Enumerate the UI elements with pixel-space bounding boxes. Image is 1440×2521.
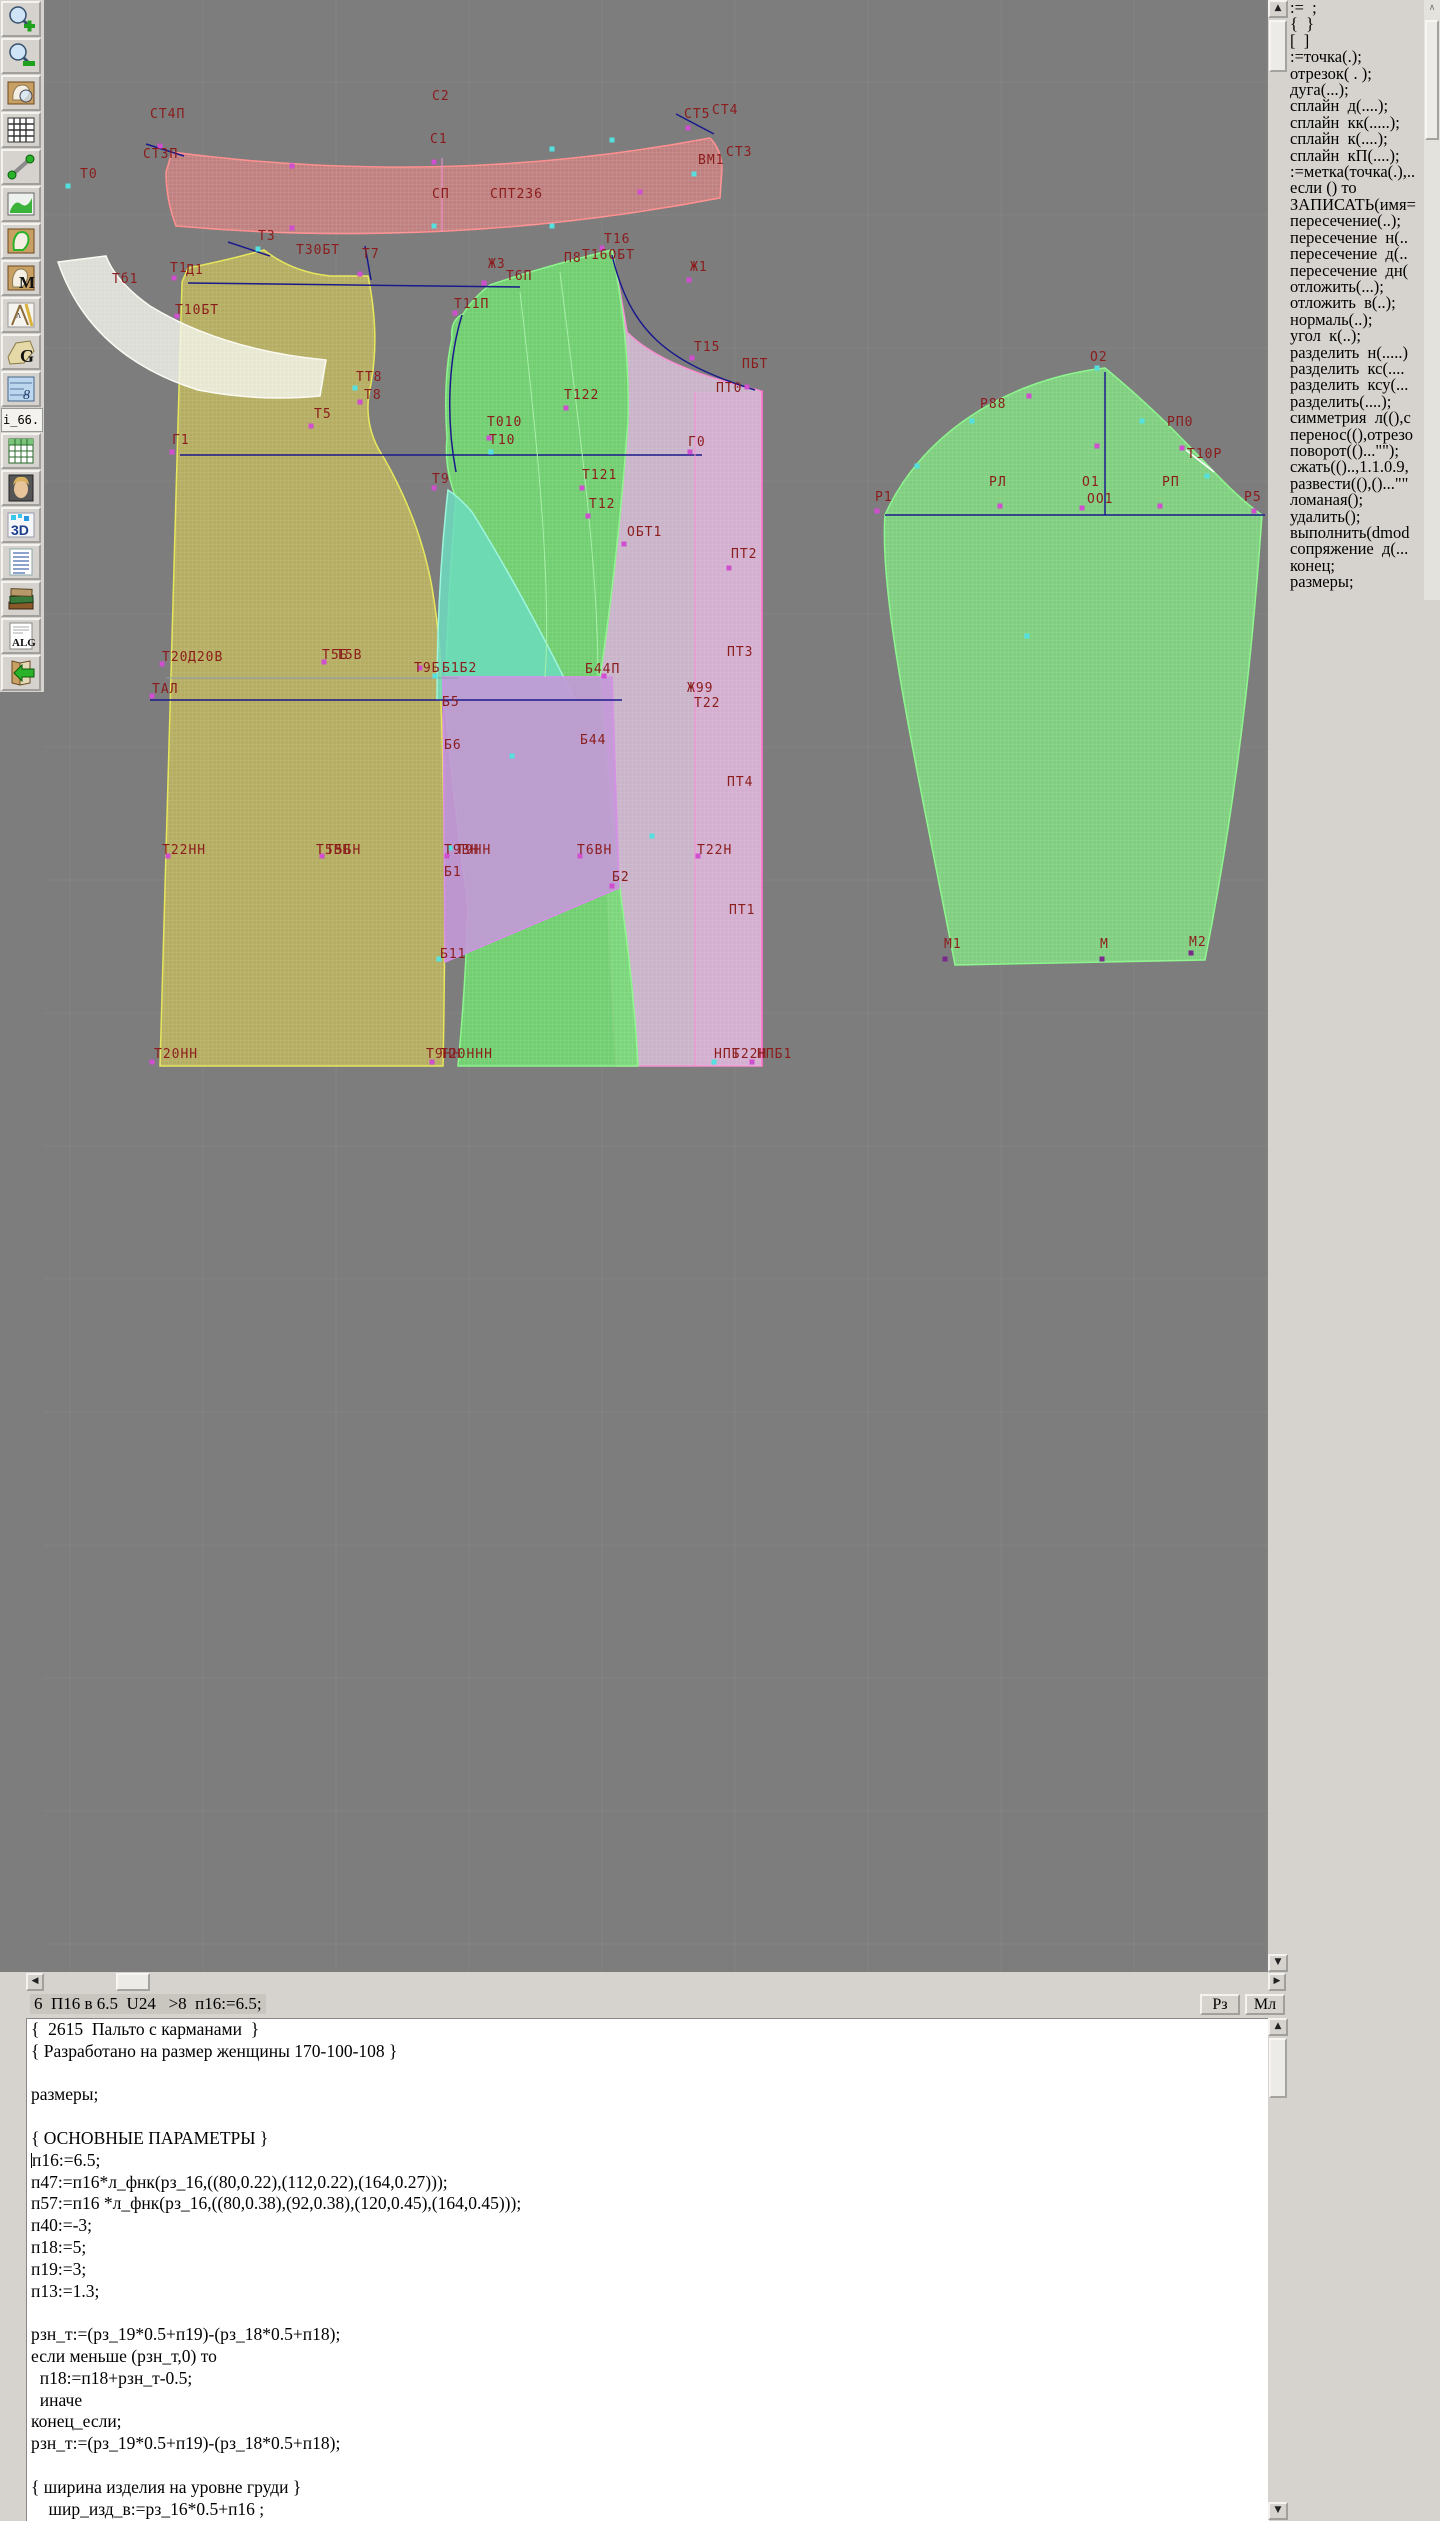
code-line[interactable]	[27, 2063, 1269, 2085]
pattern-point[interactable]	[580, 486, 585, 491]
3d-icon[interactable]: 3D	[1, 507, 41, 543]
code-lines: { 2615 Пальто с карманами }{ Разработано…	[27, 2019, 1269, 2520]
point-label: Т121	[582, 468, 617, 483]
point-label: Т1	[170, 261, 188, 276]
pattern-point[interactable]	[353, 386, 358, 391]
point-label: ПТ4	[727, 775, 753, 790]
point-label: Т122	[564, 388, 599, 403]
point-label: Т6ВН	[577, 843, 612, 858]
pattern-point[interactable]	[510, 754, 515, 759]
point-label: Т9	[432, 472, 450, 487]
pattern-point[interactable]	[358, 400, 363, 405]
pattern-point[interactable]	[610, 138, 615, 143]
portrait-icon[interactable]	[1, 470, 41, 506]
pattern-point[interactable]	[1080, 506, 1085, 511]
command-panel: := ;{ }[ ]:=точка(.);отрезок( . );дуга(.…	[1288, 0, 1440, 2520]
command-item[interactable]: { }	[1290, 16, 1426, 32]
command-list: := ;{ }[ ]:=точка(.);отрезок( . );дуга(.…	[1290, 0, 1426, 591]
point-label: ТАЛ	[152, 682, 178, 697]
point-label: Т0	[80, 167, 98, 182]
point-label: О1	[1082, 475, 1100, 490]
pattern-point[interactable]	[1095, 366, 1100, 371]
svg-text:ALG: ALG	[12, 637, 36, 649]
point-label: Р5	[1244, 490, 1262, 505]
pattern-point[interactable]	[1095, 444, 1100, 449]
pattern-point[interactable]	[489, 450, 494, 455]
point-label: Б6	[444, 738, 462, 753]
pattern-point[interactable]	[998, 504, 1003, 509]
canvas-vscroll-thumb[interactable]	[1269, 20, 1287, 72]
point-label: Т6П	[506, 269, 532, 284]
point-label: Т8	[364, 388, 382, 403]
point-label: СТ3П	[143, 147, 178, 162]
point-label: Г0	[688, 435, 706, 450]
cad-app-window: { "toolbar": { "i66_label": "i_66.", "it…	[0, 0, 1440, 2520]
pattern-point[interactable]	[1100, 957, 1105, 962]
status-bar: 6 П16 в 6.5 U24 >8 п16:=6.5; Рз Мл	[0, 1992, 1440, 2018]
code-line[interactable]: п57:=п16 *л_фнк(рз_16,((80,0.38),(92,0.3…	[27, 2193, 1269, 2215]
pattern-point[interactable]	[1180, 446, 1185, 451]
pattern-point[interactable]	[875, 509, 880, 514]
pattern-point[interactable]	[586, 514, 591, 519]
i66-label: i_66.	[1, 408, 43, 432]
alg-icon[interactable]: ALG	[1, 618, 41, 654]
point-label: Т22	[694, 696, 720, 711]
pattern-point[interactable]	[309, 424, 314, 429]
picture-icon[interactable]	[1, 186, 41, 222]
code-line[interactable]: п13:=1.3;	[27, 2281, 1269, 2303]
point-label: ТТ8	[356, 370, 382, 385]
point-label: Т11П	[454, 297, 489, 312]
svg-text:Λ: Λ	[16, 312, 21, 320]
scroll-left-icon[interactable]: ◀	[26, 1973, 44, 1991]
pattern-point[interactable]	[564, 406, 569, 411]
pattern-point[interactable]	[550, 147, 555, 152]
blueprint-icon[interactable]: 8	[1, 371, 41, 407]
point-label: Б44	[580, 733, 606, 748]
pattern-m-icon[interactable]: M	[1, 260, 41, 296]
pattern-point[interactable]	[1205, 474, 1210, 479]
point-label: Т20НН	[154, 1047, 198, 1062]
svg-text:3D: 3D	[11, 522, 29, 538]
code-line[interactable]: { ОСНОВНЫЕ ПАРАМЕТРЫ }	[27, 2128, 1269, 2150]
code-line[interactable]: { Разработано на размер женщины 170-100-…	[27, 2041, 1269, 2063]
point-label: Р88	[980, 397, 1006, 412]
pattern-point[interactable]	[290, 164, 295, 169]
point-label: Т5	[314, 407, 332, 422]
pattern-point[interactable]	[692, 172, 697, 177]
text-cursor	[31, 2153, 32, 2168]
list-icon[interactable]	[1, 544, 41, 580]
point-label: П8	[564, 251, 582, 266]
point-label: Тб1	[112, 272, 138, 287]
pattern-point[interactable]	[1158, 504, 1163, 509]
point-label: Б1Б2	[442, 661, 477, 676]
point-label: Ж99	[687, 681, 713, 696]
pattern-point[interactable]	[550, 224, 555, 229]
point-label: Т3	[258, 229, 276, 244]
point-label: СПТ236	[490, 187, 543, 202]
pattern-point[interactable]	[690, 356, 695, 361]
pattern-point[interactable]	[1027, 394, 1032, 399]
panel-scroll-up-icon[interactable]: ∧	[1424, 2, 1440, 18]
point-label: Т5В	[336, 648, 362, 663]
status-text: 6 П16 в 6.5 U24 >8 п16:=6.5;	[30, 1994, 266, 2014]
panel-vscrollbar[interactable]: ∧	[1424, 0, 1440, 600]
pattern-point[interactable]	[915, 464, 920, 469]
point-label: Б11	[440, 947, 466, 962]
point-label: Д1	[186, 263, 204, 278]
point-label: ПТ0	[716, 381, 742, 396]
zoom-in-icon[interactable]	[1, 1, 41, 37]
pattern-point[interactable]	[687, 278, 692, 283]
point-label: Т10БТ	[175, 303, 219, 318]
pattern-point[interactable]	[745, 385, 750, 390]
pattern-point[interactable]	[290, 226, 295, 231]
point-label: РП0	[1167, 415, 1193, 430]
code-scroll-down-icon[interactable]: ▼	[1268, 2502, 1288, 2520]
point-label: Т16ОБТ	[582, 248, 635, 263]
point-label: ОБТ1	[627, 525, 662, 540]
code-line[interactable]: { ширина изделия на уровне груди }	[27, 2477, 1269, 2499]
pattern-point[interactable]	[650, 834, 655, 839]
point-label: Б5	[442, 695, 460, 710]
point-label: Р1	[875, 490, 893, 505]
point-label: ПТ1	[729, 903, 755, 918]
scroll-up-icon[interactable]: ▲	[1268, 0, 1288, 18]
point-label: Т15	[694, 340, 720, 355]
pattern-point[interactable]	[1140, 419, 1145, 424]
point-label: Т10Р	[1187, 447, 1222, 462]
pattern-point[interactable]	[256, 247, 261, 252]
pattern-point[interactable]	[686, 126, 691, 131]
code-line[interactable]: п18:=5;	[27, 2237, 1269, 2259]
drawing-canvas[interactable]: СТ4ПС2СТ5СТ4СТ3ПС1ВМ1СТ3СПСПТ236Т0Тб1Т3Т…	[0, 0, 1268, 1972]
point-label: М	[1100, 937, 1109, 952]
pattern-drawing[interactable]: СТ4ПС2СТ5СТ4СТ3ПС1ВМ1СТ3СПСПТ236Т0Тб1Т3Т…	[0, 0, 1268, 1972]
code-line[interactable]: рзн_т:=(рз_19*0.5+п19)-(рз_18*0.5+п18);	[27, 2324, 1269, 2346]
point-label: М1	[944, 937, 962, 952]
code-line[interactable]: п16:=6.5;	[27, 2150, 1269, 2172]
point-label: Г1	[172, 433, 190, 448]
point-label: ПТ3	[727, 645, 753, 660]
svg-text:M: M	[19, 273, 35, 292]
books-icon[interactable]	[1, 581, 41, 617]
pattern-point[interactable]	[1252, 509, 1257, 514]
code-line[interactable]	[27, 2106, 1269, 2128]
main-toolbar: MΛG8i_66.3DALG	[0, 0, 44, 692]
point-label: Т010	[487, 415, 522, 430]
point-label: ВМ1	[698, 153, 724, 168]
scroll-right-icon[interactable]: ▶	[1268, 1973, 1286, 1991]
code-line[interactable]: п40:=-3;	[27, 2215, 1269, 2237]
point-label: С2	[432, 89, 450, 104]
point-label: ПТ2	[731, 547, 757, 562]
code-scroll-up-icon[interactable]: ▲	[1268, 2018, 1288, 2036]
drafting-tools-icon[interactable]: Λ	[1, 297, 41, 333]
point-label: О2	[1090, 350, 1108, 365]
point-label: Т9Б	[414, 661, 440, 676]
code-line[interactable]: шир_изд_в:=рз_16*0.5+п16 ;	[27, 2499, 1269, 2521]
pattern-point[interactable]	[66, 184, 71, 189]
point-label: Т7	[362, 247, 380, 262]
svg-text:8: 8	[23, 388, 30, 403]
code-editor[interactable]: { 2615 Пальто с карманами }{ Разработано…	[26, 2018, 1269, 2521]
pattern-point[interactable]	[622, 542, 627, 547]
point-label: НПБ1	[757, 1047, 792, 1062]
point-label: Ж3	[488, 257, 506, 272]
pattern-point[interactable]	[432, 160, 437, 165]
view-piece-icon[interactable]	[1, 75, 41, 111]
code-line[interactable]: п19:=3;	[27, 2259, 1269, 2281]
pattern-point[interactable]	[943, 957, 948, 962]
code-line[interactable]: п18:=п18+рзн_т-0.5;	[27, 2368, 1269, 2390]
point-label: Т9НН	[456, 843, 491, 858]
point-label: ПБТ	[742, 357, 768, 372]
point-label: Т16	[604, 232, 630, 247]
measure-icon[interactable]	[1, 149, 41, 185]
point-label: Б2	[612, 870, 630, 885]
point-label: Д20В	[188, 650, 223, 665]
pattern-point[interactable]	[170, 450, 175, 455]
pattern-point[interactable]	[1189, 951, 1194, 956]
grid-icon[interactable]	[1, 112, 41, 148]
code-line[interactable]: конец_если;	[27, 2411, 1269, 2433]
point-label: Т12	[589, 497, 615, 512]
point-label: Т22Н	[697, 843, 732, 858]
canvas-vscrollbar[interactable]: ▲ ▼	[1268, 0, 1288, 1972]
point-label: Ж1	[690, 260, 708, 275]
point-label: СТ3	[726, 145, 752, 160]
point-label: СТ5	[684, 107, 710, 122]
pattern-outline-icon[interactable]	[1, 223, 41, 259]
code-line[interactable]: п47:=п16*л_фнк(рз_16,((80,0.22),(112,0.2…	[27, 2172, 1269, 2194]
point-label: СТ4П	[150, 107, 185, 122]
panel-vscroll-thumb[interactable]	[1425, 20, 1439, 140]
canvas-hscroll-thumb[interactable]	[116, 1973, 150, 1991]
pattern-point[interactable]	[727, 566, 732, 571]
point-label: Т10	[489, 433, 515, 448]
pattern-point[interactable]	[1025, 634, 1030, 639]
rz-button[interactable]: Рз	[1200, 1994, 1240, 2015]
scroll-down-icon[interactable]: ▼	[1268, 1954, 1288, 1972]
code-line[interactable]: рзн_т:=(рз_19*0.5+п19)-(рз_18*0.5+п18);	[27, 2433, 1269, 2455]
command-item[interactable]: размеры;	[1290, 574, 1426, 590]
code-line[interactable]	[27, 2302, 1269, 2324]
pattern-point[interactable]	[432, 224, 437, 229]
point-label: Т20ННН	[440, 1047, 493, 1062]
pattern-point[interactable]	[358, 272, 363, 277]
code-line[interactable]	[27, 2455, 1269, 2477]
canvas-hscrollbar[interactable]: ◀ ▶	[26, 1972, 1288, 1992]
pattern-point[interactable]	[970, 419, 975, 424]
import-icon[interactable]	[1, 655, 41, 691]
point-label: Т20	[162, 650, 188, 665]
zoom-out-icon[interactable]	[1, 38, 41, 74]
pattern-piece[interactable]	[695, 392, 762, 1066]
pattern-point[interactable]	[688, 450, 693, 455]
point-label: ОО1	[1087, 492, 1113, 507]
table-icon[interactable]	[1, 433, 41, 469]
ml-button[interactable]: Мл	[1245, 1994, 1285, 2015]
point-label: С1	[430, 132, 448, 147]
point-label: СТ4	[712, 103, 738, 118]
point-label: Т30БТ	[296, 243, 340, 258]
code-vscrollbar[interactable]: ▲ ▼	[1268, 2018, 1288, 2520]
point-label: Т5БН	[326, 843, 361, 858]
code-line[interactable]: { 2615 Пальто с карманами }	[27, 2019, 1269, 2041]
pattern-point[interactable]	[638, 190, 643, 195]
point-label: Б44П	[585, 662, 620, 677]
code-line[interactable]: если меньше (рзн_т,0) то	[27, 2346, 1269, 2368]
point-label: РЛ	[989, 475, 1007, 490]
code-line[interactable]: размеры;	[27, 2084, 1269, 2106]
svg-text:G: G	[20, 346, 34, 366]
point-label: Т22НН	[162, 843, 206, 858]
point-label: РП	[1162, 475, 1180, 490]
point-label: СП	[432, 187, 450, 202]
point-label: Б1	[444, 865, 462, 880]
pattern-point[interactable]	[172, 276, 177, 281]
pattern-point[interactable]	[482, 281, 487, 286]
code-vscroll-thumb[interactable]	[1269, 2038, 1287, 2098]
point-label: М2	[1189, 935, 1207, 950]
pattern-g-icon[interactable]: G	[1, 334, 41, 370]
code-line[interactable]: иначе	[27, 2390, 1269, 2412]
